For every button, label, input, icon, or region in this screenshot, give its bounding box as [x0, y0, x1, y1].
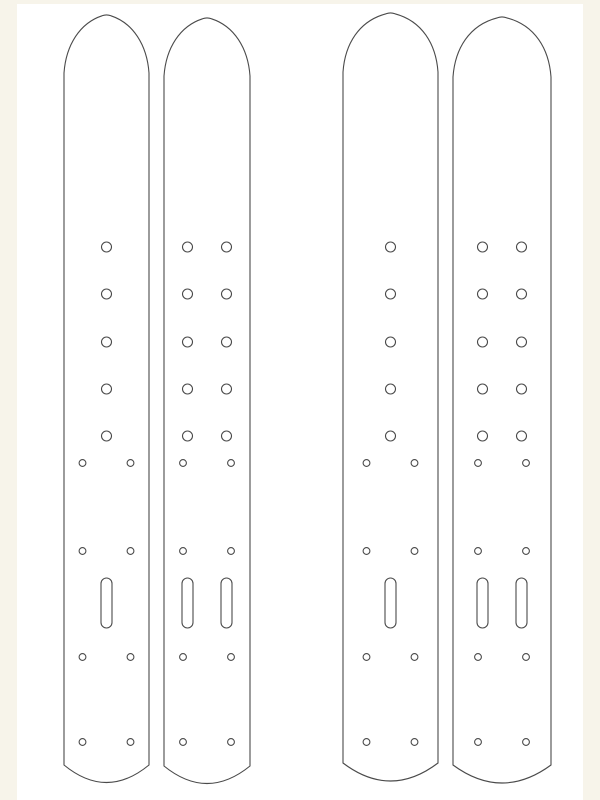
- pattern-page: [0, 0, 600, 800]
- stitch-hole: [363, 460, 370, 467]
- stitch-hole: [228, 460, 235, 467]
- strap-outline: [343, 13, 438, 781]
- stitch-hole: [523, 460, 530, 467]
- stitch-hole: [228, 654, 235, 661]
- punch-hole: [386, 384, 396, 394]
- stitch-hole: [363, 654, 370, 661]
- punch-hole: [517, 337, 527, 347]
- stitch-hole: [79, 460, 86, 467]
- punch-hole: [222, 431, 232, 441]
- punch-hole: [386, 242, 396, 252]
- stitch-hole: [475, 548, 482, 555]
- punch-hole: [222, 384, 232, 394]
- stitch-hole: [79, 654, 86, 661]
- stitch-hole: [363, 548, 370, 555]
- slot-hole: [182, 578, 193, 628]
- pattern-canvas: [0, 0, 600, 800]
- punch-hole: [517, 242, 527, 252]
- punch-hole: [183, 384, 193, 394]
- slot-hole: [101, 578, 112, 628]
- punch-hole: [478, 431, 488, 441]
- punch-hole: [517, 431, 527, 441]
- stitch-hole: [363, 739, 370, 746]
- stitch-hole: [127, 460, 134, 467]
- stitch-hole: [523, 739, 530, 746]
- punch-hole: [102, 242, 112, 252]
- stitch-hole: [180, 548, 187, 555]
- stitch-hole: [411, 460, 418, 467]
- slot-hole: [385, 578, 396, 628]
- punch-hole: [386, 337, 396, 347]
- stitch-hole: [79, 548, 86, 555]
- punch-hole: [183, 242, 193, 252]
- punch-hole: [102, 384, 112, 394]
- stitch-hole: [127, 739, 134, 746]
- stitch-hole: [475, 460, 482, 467]
- punch-hole: [222, 337, 232, 347]
- slot-hole: [221, 578, 232, 628]
- punch-hole: [478, 289, 488, 299]
- punch-hole: [183, 431, 193, 441]
- stitch-hole: [411, 739, 418, 746]
- strap-1: [64, 15, 149, 783]
- stitch-hole: [411, 654, 418, 661]
- punch-hole: [183, 289, 193, 299]
- punch-hole: [478, 384, 488, 394]
- stitch-hole: [79, 739, 86, 746]
- stitch-hole: [475, 654, 482, 661]
- stitch-hole: [127, 654, 134, 661]
- strap-outline: [164, 18, 250, 784]
- punch-hole: [222, 289, 232, 299]
- stitch-hole: [475, 739, 482, 746]
- punch-hole: [478, 242, 488, 252]
- punch-hole: [478, 337, 488, 347]
- stitch-hole: [411, 548, 418, 555]
- stitch-hole: [228, 548, 235, 555]
- slot-hole: [477, 578, 488, 628]
- stitch-hole: [180, 460, 187, 467]
- slot-hole: [516, 578, 527, 628]
- stitch-hole: [180, 739, 187, 746]
- punch-hole: [102, 337, 112, 347]
- stitch-hole: [127, 548, 134, 555]
- strap-outline: [453, 17, 551, 783]
- punch-hole: [102, 431, 112, 441]
- punch-hole: [386, 431, 396, 441]
- punch-hole: [222, 242, 232, 252]
- strap-outline: [64, 15, 149, 783]
- stitch-hole: [180, 654, 187, 661]
- punch-hole: [183, 337, 193, 347]
- strap-2: [164, 18, 250, 784]
- stitch-hole: [523, 548, 530, 555]
- stitch-hole: [523, 654, 530, 661]
- punch-hole: [386, 289, 396, 299]
- punch-hole: [517, 289, 527, 299]
- stitch-hole: [228, 739, 235, 746]
- punch-hole: [102, 289, 112, 299]
- strap-3: [343, 13, 438, 781]
- strap-4: [453, 17, 551, 783]
- punch-hole: [517, 384, 527, 394]
